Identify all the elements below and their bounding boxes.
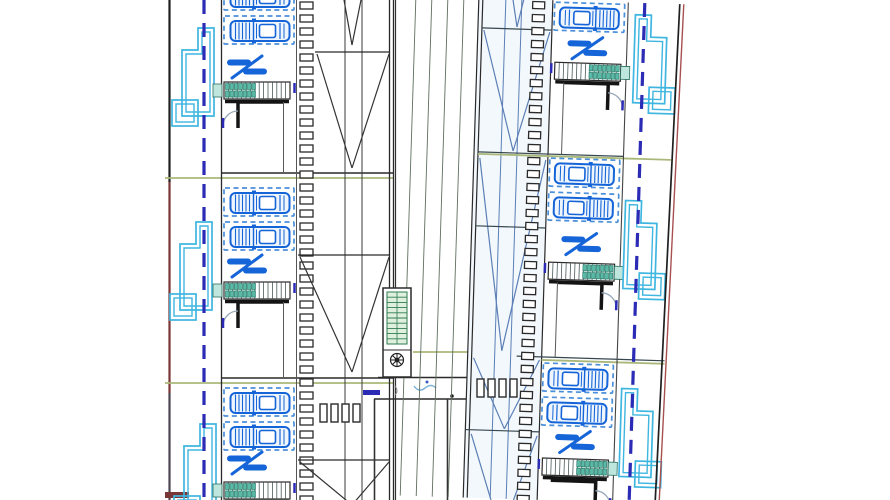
crosswalk-bar — [510, 379, 517, 397]
gate-icon — [561, 233, 602, 256]
car-icon — [231, 425, 290, 450]
curb-mark — [363, 390, 380, 395]
car-icon — [231, 191, 290, 216]
gate-icon — [227, 255, 267, 277]
car-icon — [559, 5, 619, 32]
staircase-icon — [542, 458, 609, 480]
site-plan-page — [0, 0, 890, 500]
stair-landing — [213, 484, 222, 497]
staircase-icon — [224, 82, 290, 102]
car-icon — [231, 0, 290, 10]
door-swing-arc — [595, 491, 610, 500]
car-icon — [231, 391, 290, 416]
stair-landing — [608, 462, 617, 475]
gate-icon — [227, 452, 267, 474]
vent-bar — [353, 404, 360, 422]
plan-dot — [426, 381, 429, 384]
staircase-icon — [548, 262, 615, 284]
car-icon — [231, 225, 290, 250]
car-icon — [548, 366, 608, 393]
hatched-wall — [300, 2, 313, 500]
landscape-squiggle — [414, 386, 436, 391]
stair-landing — [614, 266, 623, 279]
stair-landing — [213, 284, 222, 297]
left-property-strip — [165, 0, 216, 500]
boundary-mark — [165, 492, 189, 498]
right-site-half — [400, 0, 685, 500]
central-stair-shaft — [383, 288, 411, 377]
central-driveway — [363, 0, 478, 500]
staircase-icon — [554, 62, 621, 84]
door-swing-arc — [601, 293, 616, 308]
landscape-shape — [632, 15, 677, 114]
car-icon — [555, 161, 615, 188]
plan-dot — [450, 394, 454, 398]
left-building-block — [298, 0, 394, 500]
landscape-shape — [623, 201, 668, 300]
landscape-shape — [170, 222, 212, 320]
staircase-icon — [224, 482, 290, 500]
door-swing-arc — [607, 93, 622, 108]
stair-landing — [620, 66, 629, 79]
landscape-shape — [172, 28, 214, 126]
crosswalk-bar — [488, 379, 495, 397]
car-icon — [547, 400, 607, 427]
crosswalk-bar — [477, 379, 484, 397]
vent-bar — [320, 404, 327, 422]
car-icon — [231, 19, 290, 44]
gate-icon — [567, 37, 608, 60]
door-swing-arc — [223, 111, 238, 126]
landscape-shape — [174, 424, 216, 500]
vent-bar — [342, 404, 349, 422]
door-swing-arc — [223, 311, 238, 326]
vent-bar — [331, 404, 338, 422]
car-icon — [553, 195, 613, 222]
left-dwelling-units — [213, 0, 297, 500]
gate-icon — [555, 430, 596, 453]
stair-landing — [213, 84, 222, 97]
staircase-icon — [224, 282, 290, 302]
site-plan-canvas — [0, 0, 890, 500]
gate-icon — [227, 56, 267, 78]
crosswalk-bar — [499, 379, 506, 397]
